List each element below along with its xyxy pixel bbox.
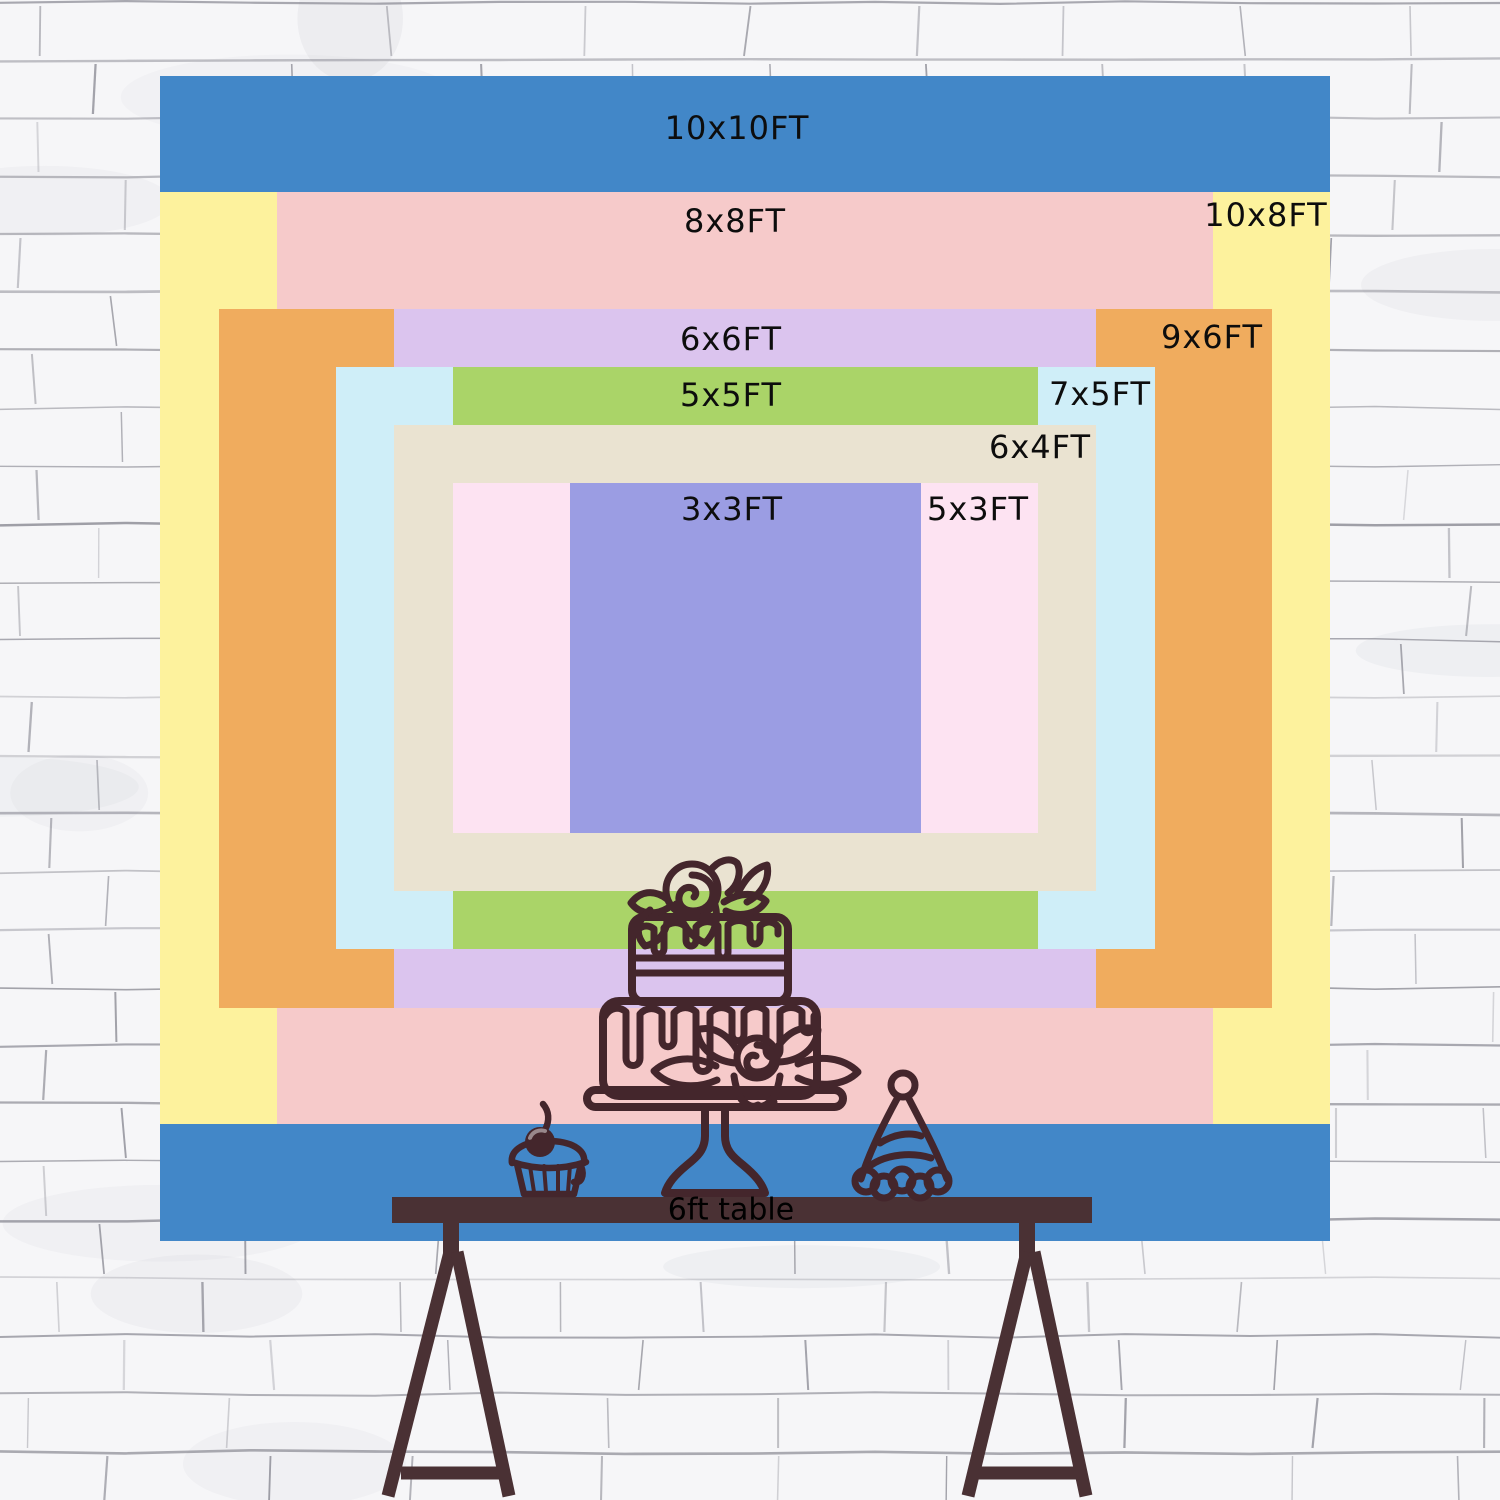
backdrop-label-8x8ft: 8x8FT [684,202,786,240]
cherry-stem [543,1104,548,1130]
backdrop-label-5x5ft: 5x5FT [680,376,782,414]
backdrop-label-6x4ft: 6x4FT [989,428,1091,466]
table-size-label: 6ft table [668,1193,794,1228]
hat-trim [855,1169,949,1198]
backdrop-label-6x6ft: 6x6FT [680,320,782,358]
trestle-table [388,1197,1092,1496]
backdrop-label-7x5ft: 7x5FT [1049,375,1151,413]
backdrop-label-5x3ft: 5x3FT [927,490,1029,528]
table-legs [388,1252,1086,1496]
cupcake-icon [512,1104,586,1194]
backdrop-size-chart: 10x10FT10x8FT8x8FT9x6FT6x6FT7x5FT5x5FT6x… [0,0,1500,1500]
party-hat-icon [855,1073,949,1198]
backdrop-label-3x3ft: 3x3FT [681,490,783,528]
backdrop-label-10x10ft: 10x10FT [665,109,810,147]
cake-icon [587,860,858,1193]
hat-pompom [891,1073,915,1097]
table-scene [330,840,1150,1500]
backdrop-label-9x6ft: 9x6FT [1161,318,1263,356]
cake-stand [665,1108,765,1193]
backdrop-rect-3x3ft [570,483,921,833]
backdrop-label-10x8ft: 10x8FT [1204,196,1327,234]
